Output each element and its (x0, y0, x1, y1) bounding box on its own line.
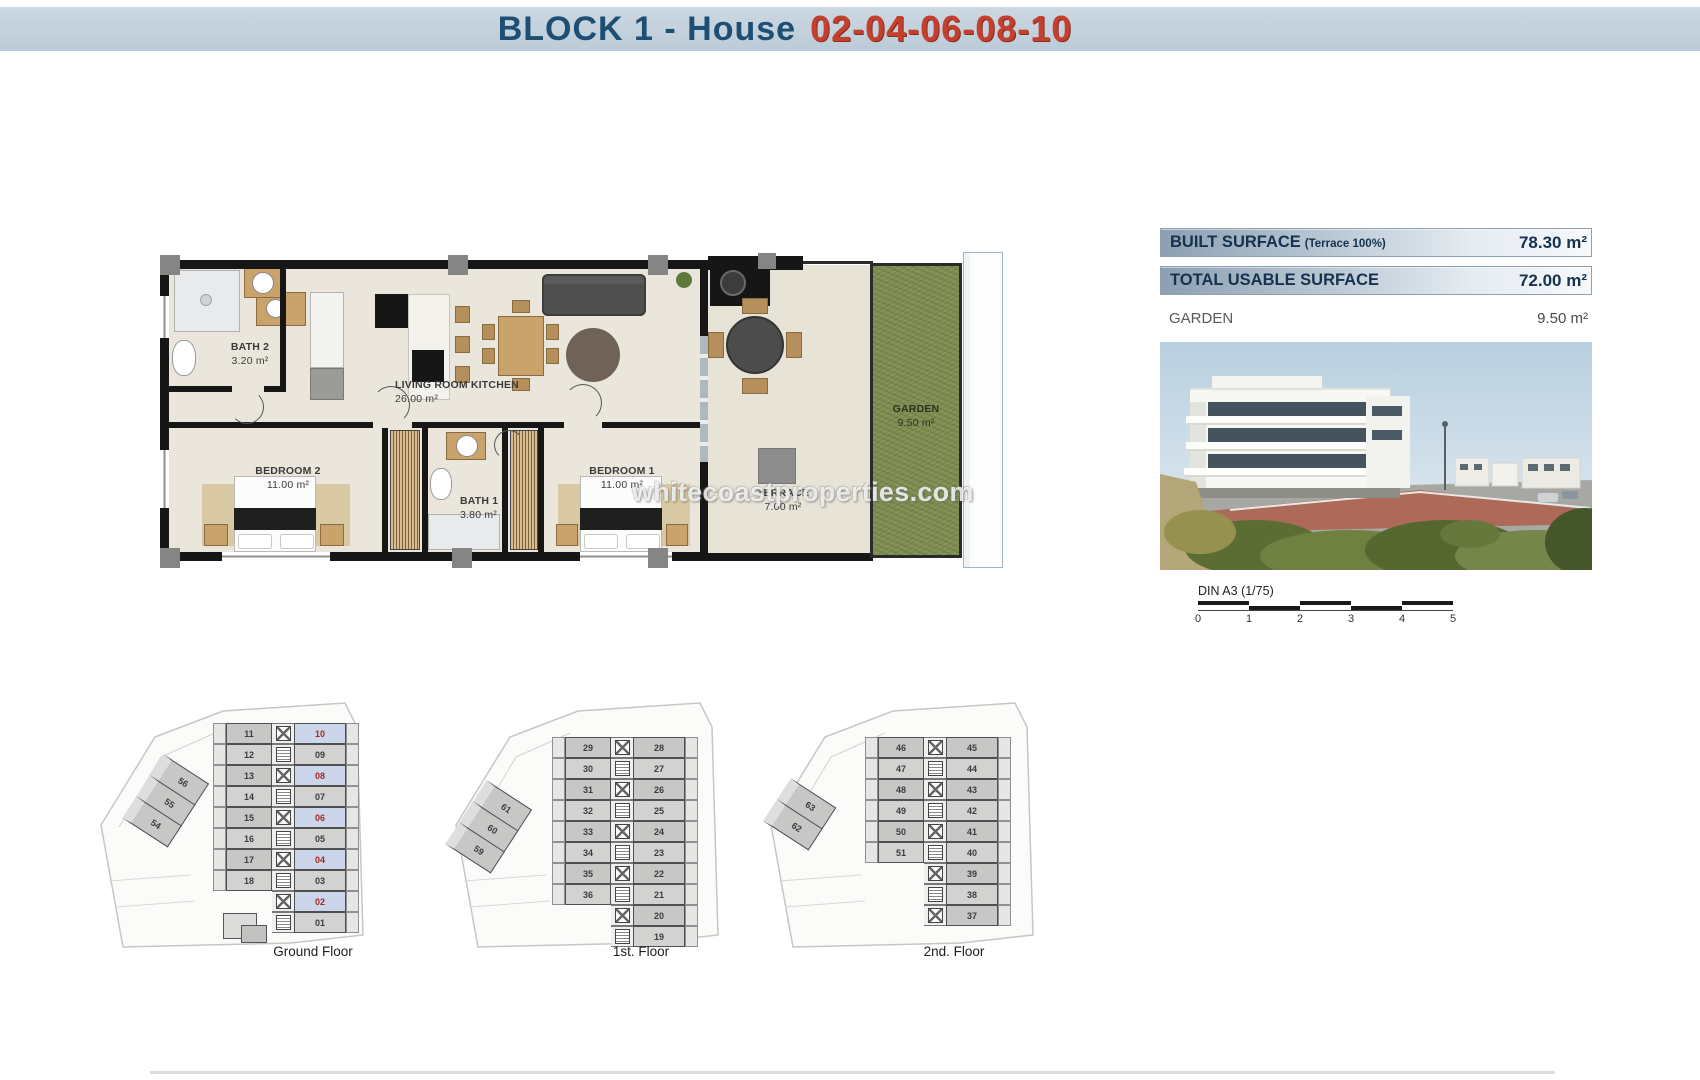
unit-cell: 16 (226, 828, 272, 849)
garden-surface-label: GARDEN (1169, 310, 1233, 327)
balcony-cell (213, 723, 226, 744)
balcony-cell (998, 779, 1011, 800)
scale-segment (1198, 601, 1249, 605)
unit-row: 38 (865, 884, 1011, 905)
corridor (272, 765, 294, 786)
terrace-chair-icon (786, 332, 802, 358)
toilet-icon (430, 468, 452, 500)
chair-icon (546, 348, 559, 364)
corridor (611, 884, 633, 905)
stairs-icon (276, 831, 291, 846)
balcony-cell (346, 723, 359, 744)
unit-cell-highlighted: 10 (294, 723, 346, 744)
nightstand-icon (666, 524, 688, 546)
unit-cell: 42 (946, 800, 998, 821)
balcony-cell (552, 821, 565, 842)
unit-cell: 29 (565, 737, 611, 758)
pillow-icon (584, 534, 618, 549)
main-wing: 292830273126322533243423352236212019 (552, 737, 698, 947)
unit-cell: 40 (946, 842, 998, 863)
balcony-cell (685, 737, 698, 758)
unit-row: 1506 (213, 807, 359, 828)
wall-segment (160, 260, 708, 269)
main-wing: 111012091308140715061605170418030201 (213, 723, 359, 933)
balcony-cell (685, 842, 698, 863)
nightstand-icon (320, 524, 344, 546)
unit-cell: 41 (946, 821, 998, 842)
balcony-cell (552, 758, 565, 779)
bath2-sink-icon (252, 272, 274, 294)
balcony-cell (552, 884, 565, 905)
unit-row: 5140 (865, 842, 1011, 863)
corridor (272, 723, 294, 744)
unit-cell-highlighted: 06 (294, 807, 346, 828)
room-label-living: LIVING ROOM KITCHEN26.00 m² (395, 378, 519, 406)
corridor (924, 821, 946, 842)
wall-segment (538, 428, 544, 552)
elevator-icon (276, 852, 291, 867)
unit-row: 5041 (865, 821, 1011, 842)
unit-row: 3522 (552, 863, 698, 884)
ground-floor-keyplan: 565554 111012091308140715061605170418030… (95, 697, 440, 959)
page-title: BLOCK 1 - House (498, 10, 796, 49)
corridor (924, 758, 946, 779)
usable-surface-row: TOTAL USABLE SURFACE 72.00 m² (1160, 266, 1592, 295)
stairs-icon (615, 929, 630, 944)
unit-cell: 51 (878, 842, 924, 863)
unit-row: 02 (213, 891, 359, 912)
elevator-icon (928, 824, 943, 839)
stool-icon (455, 306, 470, 323)
built-surface-value: 78.30 m² (1519, 233, 1587, 253)
second-floor-keyplan: 6362 464547444843494250415140393837 2nd.… (765, 697, 1110, 959)
stairs-icon (928, 845, 943, 860)
elevator-icon (615, 824, 630, 839)
round-rug-icon (566, 328, 620, 382)
room-label-bath1: BATH 13.80 m² (460, 494, 498, 522)
unit-cell: 34 (565, 842, 611, 863)
elevator-icon (928, 866, 943, 881)
balcony-cell (346, 870, 359, 891)
balcony-cell (998, 821, 1011, 842)
pillar (648, 255, 668, 275)
stairs-icon (615, 803, 630, 818)
corridor (924, 842, 946, 863)
bath1-sink-icon (456, 435, 478, 457)
door-arc (564, 384, 602, 422)
stairs-icon (928, 803, 943, 818)
balcony-cell (998, 737, 1011, 758)
elevator-icon (276, 894, 291, 909)
corridor (611, 779, 633, 800)
scale-tick: 3 (1348, 613, 1354, 625)
unit-cell: 44 (946, 758, 998, 779)
unit-cell: 32 (565, 800, 611, 821)
shower-drain-icon (200, 294, 212, 306)
elevator-icon (928, 740, 943, 755)
unit-row: 1803 (213, 870, 359, 891)
corridor (924, 779, 946, 800)
wall-segment (169, 422, 373, 428)
pillow-icon (626, 534, 660, 549)
unit-cell: 23 (633, 842, 685, 863)
brochure-page: BLOCK 1 - House 02-04-06-08-10 BUILT SUR… (0, 0, 1700, 1080)
wall-segment (602, 422, 700, 428)
wall-segment (160, 386, 232, 392)
corridor (924, 884, 946, 905)
wall-segment (382, 428, 388, 552)
corridor (924, 905, 946, 926)
terrace-chair-icon (742, 378, 768, 394)
elevator-icon (615, 782, 630, 797)
balcony-cell (998, 842, 1011, 863)
balcony-cell (346, 807, 359, 828)
wall-segment (873, 555, 961, 558)
balcony-cell (685, 758, 698, 779)
nightstand-icon (556, 524, 578, 546)
window-icon (160, 450, 169, 508)
balcony-cell (552, 842, 565, 863)
unit-cell: 49 (878, 800, 924, 821)
stool-icon (455, 336, 470, 353)
built-surface-label: BUILT SURFACE(Terrace 100%) (1170, 233, 1386, 252)
unit-row: 1605 (213, 828, 359, 849)
window-icon (222, 552, 330, 561)
balcony-cell (685, 863, 698, 884)
stairs-icon (615, 761, 630, 776)
elevator-icon (276, 726, 291, 741)
built-surface-row: BUILT SURFACE(Terrace 100%) 78.30 m² (1160, 228, 1592, 257)
elevator-icon (276, 768, 291, 783)
balcony-cell (213, 849, 226, 870)
elevator-icon (276, 810, 291, 825)
floor-label-first: 1st. Floor (541, 944, 741, 959)
building-photo (1160, 342, 1592, 570)
unit-cell: 01 (294, 912, 346, 933)
stairs-icon (276, 747, 291, 762)
dining-table (498, 316, 544, 376)
garden-surface-value: 9.50 m² (1537, 310, 1588, 327)
balcony-cell (865, 842, 878, 863)
unit-cell: 46 (878, 737, 924, 758)
corridor (272, 870, 294, 891)
balcony-cell (213, 744, 226, 765)
unit-cell: 48 (878, 779, 924, 800)
corridor (272, 786, 294, 807)
unit-cell: 09 (294, 744, 346, 765)
unit-cell: 36 (565, 884, 611, 905)
unit-cell: 27 (633, 758, 685, 779)
unit-cell: 15 (226, 807, 272, 828)
scale-segment (1300, 601, 1351, 605)
unit-cell: 05 (294, 828, 346, 849)
balcony-cell (685, 779, 698, 800)
unit-row: 3423 (552, 842, 698, 863)
scale-segment (1351, 606, 1402, 610)
scale-bar-track (1198, 601, 1453, 611)
unit-row: 1308 (213, 765, 359, 786)
terrace-chair-icon (742, 298, 768, 314)
bed-blanket (234, 508, 316, 530)
chair-icon (512, 300, 530, 313)
unit-row: 20 (552, 905, 698, 926)
scale-segment (1249, 606, 1300, 610)
building-photo-svg (1160, 342, 1592, 570)
unit-cell: 17 (226, 849, 272, 870)
plant-icon (676, 272, 692, 288)
pillar (160, 255, 180, 275)
unit-cell: 50 (878, 821, 924, 842)
footer-divider (150, 1071, 1555, 1074)
window-icon (160, 296, 169, 338)
pillar (160, 548, 180, 568)
balcony-cell (998, 884, 1011, 905)
oven-icon (375, 294, 409, 328)
scale-bar-ticks: 012345 (1198, 611, 1453, 625)
unit-row: 1110 (213, 723, 359, 744)
scale-tick: 0 (1195, 613, 1201, 625)
balcony-cell (865, 821, 878, 842)
wall-segment (708, 553, 873, 561)
unit-cell: 11 (226, 723, 272, 744)
balcony-cell (865, 800, 878, 821)
stairs-icon (276, 873, 291, 888)
floor-label-second: 2nd. Floor (854, 944, 1054, 959)
unit-row: 3126 (552, 779, 698, 800)
wall-segment (873, 263, 961, 266)
wall-segment (708, 256, 803, 270)
room-label-bath2: BATH 23.20 m² (208, 340, 292, 368)
balcony-cell (346, 765, 359, 786)
balcony-cell (998, 800, 1011, 821)
balcony-cell (552, 863, 565, 884)
balcony-cell (552, 779, 565, 800)
unit-cell: 38 (946, 884, 998, 905)
balcony-cell (685, 905, 698, 926)
elevator-icon (615, 866, 630, 881)
balcony-cell (346, 849, 359, 870)
scale-bar-label: DIN A3 (1/75) (1198, 584, 1468, 598)
title-bar: BLOCK 1 - House 02-04-06-08-10 (0, 7, 1700, 51)
unit-row: 4942 (865, 800, 1011, 821)
scale-tick: 5 (1450, 613, 1456, 625)
unit-row: 4645 (865, 737, 1011, 758)
unit-cell: 03 (294, 870, 346, 891)
balcony-cell (213, 786, 226, 807)
wall-segment (870, 263, 873, 558)
corridor (272, 849, 294, 870)
nightstand-icon (204, 524, 228, 546)
wall-segment (803, 261, 873, 264)
corridor (272, 891, 294, 912)
corridor (272, 828, 294, 849)
unit-cell: 24 (633, 821, 685, 842)
balcony-cell (213, 807, 226, 828)
balcony-cell (998, 758, 1011, 779)
unit-cell: 31 (565, 779, 611, 800)
toilet-icon (172, 340, 196, 376)
unit-cell-highlighted: 02 (294, 891, 346, 912)
balcony-cell (685, 884, 698, 905)
unit-row: 1209 (213, 744, 359, 765)
unit-row: 3225 (552, 800, 698, 821)
balcony-cell (346, 912, 359, 933)
scale-tick: 4 (1399, 613, 1405, 625)
bbq-grill-icon (720, 270, 746, 296)
balcony-cell (998, 863, 1011, 884)
core-box (241, 925, 267, 943)
chair-icon (482, 324, 495, 340)
unit-cell-highlighted: 08 (294, 765, 346, 786)
unit-cell-highlighted: 04 (294, 849, 346, 870)
unit-cell: 13 (226, 765, 272, 786)
unit-cell: 37 (946, 905, 998, 926)
sliding-door-icon (700, 336, 708, 462)
pillar (448, 255, 468, 275)
corridor (924, 863, 946, 884)
unit-cell: 28 (633, 737, 685, 758)
unit-cell: 22 (633, 863, 685, 884)
unit-cell: 14 (226, 786, 272, 807)
balcony-cell (865, 758, 878, 779)
pillar (452, 548, 472, 568)
unit-cell: 30 (565, 758, 611, 779)
unit-cell: 43 (946, 779, 998, 800)
corridor (611, 863, 633, 884)
wardrobe-icon (390, 430, 420, 550)
sofa-icon (542, 274, 646, 316)
pillow-icon (238, 534, 272, 549)
garden-surface-row: GARDEN 9.50 m² (1160, 304, 1592, 331)
balcony-cell (213, 870, 226, 891)
balcony-cell (552, 800, 565, 821)
scale-segment (1402, 601, 1453, 605)
door-arc (494, 430, 524, 460)
corridor (924, 737, 946, 758)
fridge-icon (310, 368, 344, 400)
pillar (758, 253, 776, 269)
unit-cell: 21 (633, 884, 685, 905)
terrace-chair-icon (708, 332, 724, 358)
balcony-cell (346, 744, 359, 765)
room-label-garden: GARDEN9.50 m² (878, 402, 954, 430)
first-floor-keyplan: 616059 292830273126322533243423352236212… (450, 697, 795, 959)
unit-row: 1704 (213, 849, 359, 870)
unit-row: 2928 (552, 737, 698, 758)
usable-surface-label: TOTAL USABLE SURFACE (1170, 271, 1379, 290)
unit-row: 37 (865, 905, 1011, 926)
chair-icon (482, 348, 495, 364)
unit-cell: 07 (294, 786, 346, 807)
unit-row: 3621 (552, 884, 698, 905)
scale-tick: 1 (1246, 613, 1252, 625)
unit-row: 4843 (865, 779, 1011, 800)
balcony-cell (685, 800, 698, 821)
unit-row: 39 (865, 863, 1011, 884)
unit-row: 3324 (552, 821, 698, 842)
bed-blanket (580, 508, 662, 530)
wall-segment (280, 260, 286, 392)
balcony-cell (213, 828, 226, 849)
stairs-icon (615, 887, 630, 902)
elevator-icon (615, 740, 630, 755)
door-arc (230, 390, 264, 424)
kitchen-cabinet (310, 292, 344, 368)
main-wing: 464547444843494250415140393837 (865, 737, 1011, 926)
unit-row: 1407 (213, 786, 359, 807)
wall-segment (959, 263, 962, 558)
corridor (272, 912, 294, 933)
unit-cell: 18 (226, 870, 272, 891)
unit-cell: 25 (633, 800, 685, 821)
watermark: whitecoastproperties.com (632, 477, 942, 508)
balcony-cell (685, 821, 698, 842)
unit-cell: 45 (946, 737, 998, 758)
balcony-cell (346, 828, 359, 849)
stairs-icon (928, 761, 943, 776)
stairs-icon (615, 845, 630, 860)
balcony-cell (865, 737, 878, 758)
unit-cell: 47 (878, 758, 924, 779)
corridor (272, 807, 294, 828)
balcony-cell (213, 765, 226, 786)
side-walkway (963, 252, 1003, 568)
balcony-cell (998, 905, 1011, 926)
balcony-cell (346, 891, 359, 912)
unit-cell: 35 (565, 863, 611, 884)
balcony-cell (346, 786, 359, 807)
corridor (611, 842, 633, 863)
corridor (924, 800, 946, 821)
unit-cell: 39 (946, 863, 998, 884)
room-label-bedroom2: BEDROOM 211.00 m² (242, 464, 334, 492)
main-building (1184, 376, 1410, 498)
unit-cell: 26 (633, 779, 685, 800)
corridor (611, 821, 633, 842)
usable-surface-value: 72.00 m² (1519, 271, 1587, 291)
corridor (272, 744, 294, 765)
pillow-icon (280, 534, 314, 549)
terrace-note: (Terrace 100%) (1305, 238, 1386, 250)
surface-table: BUILT SURFACE(Terrace 100%) 78.30 m² TOT… (1160, 228, 1592, 340)
unit-cell: 33 (565, 821, 611, 842)
unit-cell: 20 (633, 905, 685, 926)
corridor (611, 758, 633, 779)
wall-segment (264, 386, 286, 392)
scale-tick: 2 (1297, 613, 1303, 625)
elevator-icon (615, 908, 630, 923)
terrace-table-icon (726, 316, 784, 374)
page-title-house-numbers: 02-04-06-08-10 (810, 8, 1072, 50)
unit-row: 3027 (552, 758, 698, 779)
corridor (611, 737, 633, 758)
unit-cell: 12 (226, 744, 272, 765)
corridor (611, 800, 633, 821)
distant-buildings (1455, 458, 1580, 488)
chair-icon (546, 324, 559, 340)
stairs-icon (276, 915, 291, 930)
unit-row: 4744 (865, 758, 1011, 779)
pillar (648, 548, 668, 568)
elevator-icon (928, 782, 943, 797)
floor-label-ground: Ground Floor (213, 944, 413, 959)
scale-bar: DIN A3 (1/75) 012345 (1198, 584, 1468, 625)
elevator-icon (928, 908, 943, 923)
corridor (611, 905, 633, 926)
balcony-cell (552, 737, 565, 758)
wall-segment (422, 428, 428, 552)
stairs-icon (928, 887, 943, 902)
